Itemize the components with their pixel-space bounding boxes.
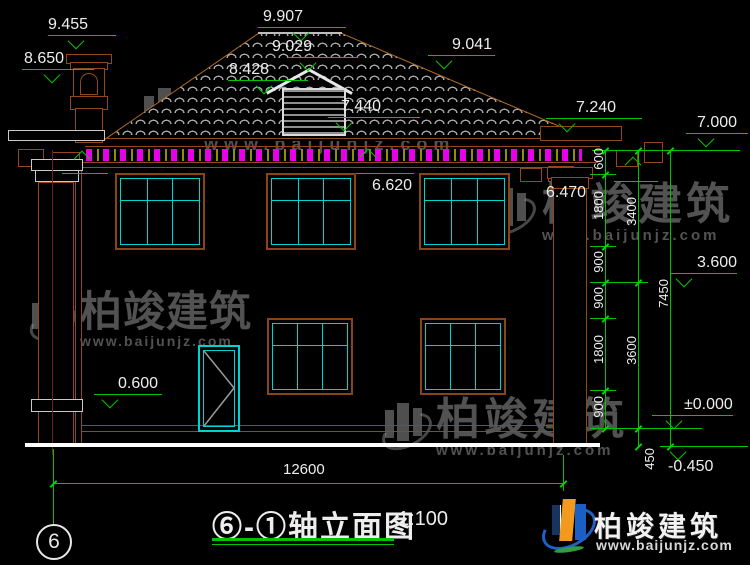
window-mullion — [322, 324, 323, 389]
axis-bubble: 6 — [36, 524, 72, 560]
dim-value: 3400 — [624, 197, 639, 226]
watermark: 柏竣建筑 www.baijunjz.com — [484, 183, 734, 244]
elevation-line — [356, 173, 414, 174]
dim-value: 12600 — [283, 461, 325, 478]
window-glazing — [424, 178, 505, 245]
drawing-scale: 1:100 — [398, 508, 448, 531]
window — [115, 173, 205, 250]
right-pilaster-shaft — [553, 188, 587, 445]
eave-soffit-line — [80, 162, 598, 163]
right-eave-cap — [540, 126, 622, 141]
elevation-value: 6.620 — [372, 177, 412, 195]
eave-corbel — [520, 168, 542, 182]
dim-value: 450 — [642, 448, 657, 470]
elevation-value: 8.428 — [229, 61, 269, 79]
elevation-value: 7.440 — [341, 98, 381, 116]
elevation-line — [428, 55, 495, 56]
axis-number: 6 — [48, 530, 60, 554]
elevation-line — [288, 57, 358, 58]
window — [267, 318, 353, 395]
window-mullion — [475, 324, 476, 389]
elevation-value: 7.240 — [576, 99, 616, 117]
left-column-capital — [35, 170, 79, 182]
window-transom — [273, 345, 347, 346]
brand-logo: 柏竣建筑 www.baijunjz.com — [538, 497, 750, 559]
brand-url: www.baijunjz.com — [596, 537, 733, 553]
window-glazing — [425, 323, 501, 390]
left-cornice-cap — [8, 130, 105, 141]
elevation-value: 9.041 — [452, 36, 492, 54]
ground-line — [25, 443, 600, 447]
elevation-line — [94, 394, 162, 395]
window-mullion — [451, 179, 452, 244]
elevation-value: 9.907 — [263, 8, 303, 26]
eave-corbel — [644, 142, 663, 163]
window-glazing — [271, 178, 351, 245]
window-mullion — [477, 179, 478, 244]
dim-value: 900 — [591, 287, 606, 309]
watermark-text: 柏竣建筑 www.baijunjz.com — [80, 291, 252, 349]
dim-value: 3600 — [624, 336, 639, 365]
elevation-value: ±0.000 — [684, 396, 733, 414]
elevation-line — [22, 69, 94, 70]
eave-dentil-band — [86, 149, 582, 161]
title-underline-thin — [212, 544, 394, 545]
elevation-line — [614, 181, 658, 182]
window-transom — [272, 200, 350, 201]
window-mullion — [450, 324, 451, 389]
watermark-logo-icon — [380, 398, 436, 456]
window-transom — [121, 200, 199, 201]
window-transom — [426, 345, 500, 346]
dim-value: 900 — [591, 251, 606, 273]
plinth-line — [81, 431, 579, 432]
elevation-line — [686, 133, 748, 134]
elevation-line — [546, 118, 642, 119]
window-glazing — [272, 323, 348, 390]
dim-value: 1800 — [591, 335, 606, 364]
window — [419, 173, 510, 250]
door-swing-icon — [204, 351, 234, 426]
left-column-band — [31, 399, 83, 412]
elevation-value: 0.600 — [118, 375, 158, 393]
elevation-value: 7.000 — [697, 114, 737, 132]
dim-value: 1800 — [591, 191, 606, 220]
cad-elevation-drawing: 柏竣建筑 www.baijunjz.com 柏竣建筑 www.baijunjz.… — [0, 0, 750, 565]
title-underline — [212, 538, 394, 541]
axis-line — [52, 150, 53, 455]
window — [420, 318, 506, 395]
plinth-line — [81, 425, 579, 426]
elevation-line — [62, 173, 108, 174]
elevation-value: 9.455 — [48, 16, 88, 34]
window-transom — [425, 200, 504, 201]
window-mullion — [323, 179, 324, 244]
watermark-brand: 柏竣建筑 — [80, 291, 252, 333]
elevation-line — [652, 415, 733, 416]
dim-value: 900 — [591, 396, 606, 418]
window-mullion — [297, 324, 298, 389]
eave-soffit-line — [75, 167, 592, 168]
chimney-arch-opening — [80, 73, 98, 95]
elevation-value: 6.470 — [546, 184, 586, 202]
dim-datum-line — [592, 150, 740, 151]
elevation-value: 9.029 — [272, 38, 312, 56]
elevation-value: 3.600 — [697, 254, 737, 272]
door — [198, 345, 240, 432]
elevation-line — [48, 35, 116, 36]
dim-chain-line — [638, 150, 639, 446]
dim-line — [53, 483, 563, 484]
window-glazing — [120, 178, 200, 245]
elevation-value: 8.650 — [24, 50, 64, 68]
elevation-value: -0.450 — [668, 458, 713, 476]
dim-ext-line — [53, 449, 54, 524]
window-mullion — [172, 179, 173, 244]
dim-value: 7450 — [656, 279, 671, 308]
eave-fascia-line — [85, 146, 600, 147]
window-mullion — [147, 179, 148, 244]
window-mullion — [298, 179, 299, 244]
window — [266, 173, 356, 250]
dormer-louver — [282, 88, 346, 136]
